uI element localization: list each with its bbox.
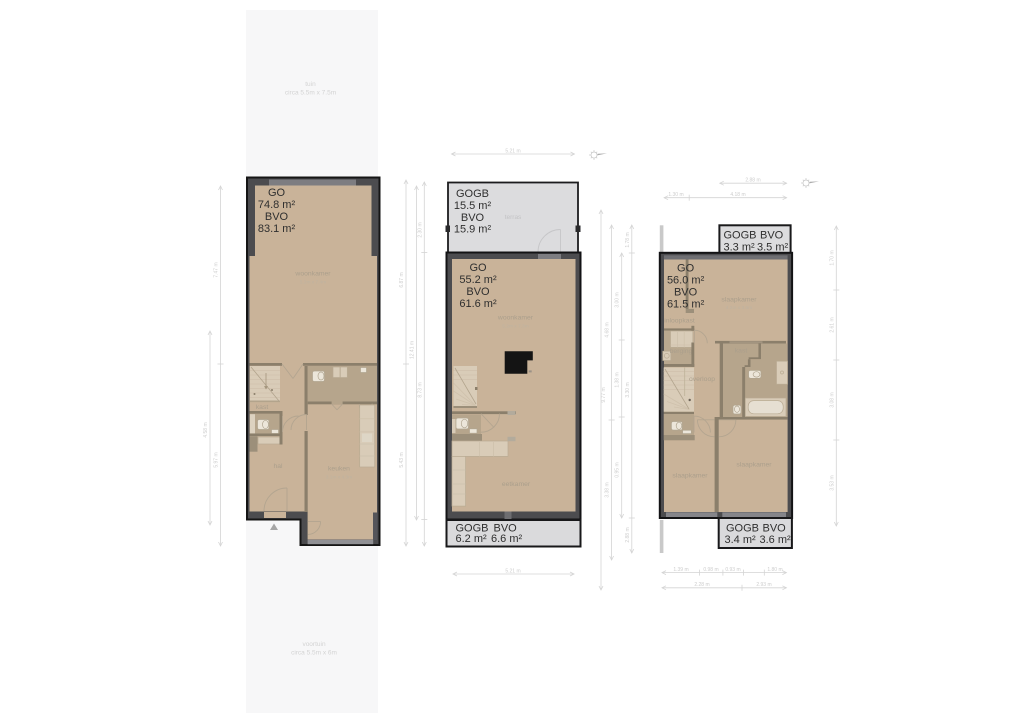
- svg-text:woonkamer: woonkamer: [294, 271, 331, 278]
- svg-text:5.21 m: 5.21 m: [505, 149, 520, 155]
- svg-text:inloopkast: inloopkast: [664, 317, 695, 324]
- svg-text:4.68 m: 4.68 m: [605, 322, 611, 337]
- svg-text:2.88 m: 2.88 m: [745, 178, 760, 184]
- svg-text:tuin: tuin: [305, 81, 316, 88]
- svg-text:0.93 m: 0.93 m: [725, 567, 740, 573]
- svg-text:61.5 m²: 61.5 m²: [667, 299, 705, 311]
- svg-text:3.6 m²: 3.6 m²: [760, 534, 792, 546]
- svg-text:kast: kast: [735, 348, 748, 355]
- svg-text:83.1 m²: 83.1 m²: [258, 223, 296, 235]
- svg-text:2.88 m: 2.88 m: [625, 527, 631, 542]
- svg-text:0.95 m: 0.95 m: [615, 462, 621, 477]
- svg-text:4.2m x 3.6m: 4.2m x 3.6m: [726, 305, 752, 311]
- svg-text:1.39 m: 1.39 m: [673, 567, 688, 573]
- svg-text:2.30 m: 2.30 m: [417, 222, 423, 237]
- svg-text:15.5 m²: 15.5 m²: [454, 200, 492, 212]
- svg-text:5.43 m: 5.43 m: [399, 452, 405, 467]
- svg-text:eetkamer: eetkamer: [502, 481, 531, 488]
- svg-text:3.1m x 4.3m: 3.1m x 4.3m: [326, 475, 352, 481]
- svg-text:GOGB: GOGB: [726, 522, 759, 534]
- svg-text:GOGB: GOGB: [456, 188, 489, 200]
- svg-text:3.5 m²: 3.5 m²: [757, 241, 789, 253]
- svg-text:9.77 m: 9.77 m: [601, 387, 607, 402]
- svg-text:3.53 m: 3.53 m: [829, 475, 835, 490]
- svg-text:3.30 m: 3.30 m: [625, 382, 631, 397]
- svg-text:1.38 m: 1.38 m: [615, 372, 621, 387]
- svg-text:slaapkamer: slaapkamer: [721, 297, 757, 304]
- svg-text:GO: GO: [677, 263, 695, 275]
- svg-text:berging: berging: [670, 348, 693, 355]
- svg-text:0.98 m: 0.98 m: [703, 567, 718, 573]
- svg-text:3.08 m: 3.08 m: [829, 392, 835, 407]
- svg-text:5.21 m: 5.21 m: [505, 569, 520, 575]
- svg-text:1.80 m: 1.80 m: [767, 567, 782, 573]
- svg-text:overloop: overloop: [689, 376, 715, 383]
- svg-text:GO: GO: [268, 187, 286, 199]
- svg-text:3.4 m²: 3.4 m²: [725, 534, 757, 546]
- svg-text:4.18 m: 4.18 m: [730, 192, 745, 198]
- svg-text:GO: GO: [469, 262, 487, 274]
- svg-text:1.30 m: 1.30 m: [668, 192, 683, 198]
- svg-text:6.2 m²: 6.2 m²: [456, 533, 488, 545]
- svg-text:12.41 m: 12.41 m: [410, 341, 416, 359]
- svg-text:74.8 m²: 74.8 m²: [258, 199, 296, 211]
- svg-text:woonkamer: woonkamer: [497, 315, 534, 322]
- svg-text:2.61 m: 2.61 m: [829, 317, 835, 332]
- svg-text:BVO: BVO: [760, 230, 784, 242]
- svg-text:7.47 m: 7.47 m: [214, 262, 220, 277]
- svg-text:56.0 m²: 56.0 m²: [667, 275, 705, 287]
- svg-text:3.38 m: 3.38 m: [605, 482, 611, 497]
- svg-text:61.6 m²: 61.6 m²: [459, 298, 497, 310]
- svg-text:BVO: BVO: [674, 287, 698, 299]
- svg-text:voortuin: voortuin: [302, 641, 326, 648]
- svg-text:5.2m x 7.4m: 5.2m x 7.4m: [300, 280, 326, 286]
- svg-text:circa 5.5m x 6m: circa 5.5m x 6m: [291, 650, 337, 657]
- svg-text:8.73 m: 8.73 m: [417, 382, 423, 397]
- svg-text:15.9 m²: 15.9 m²: [454, 224, 492, 236]
- svg-text:circa 5.5m x 7.5m: circa 5.5m x 7.5m: [285, 90, 336, 97]
- svg-text:3.00 m: 3.00 m: [615, 292, 621, 307]
- svg-text:BVO: BVO: [466, 286, 490, 298]
- svg-text:hal: hal: [273, 463, 283, 470]
- svg-text:keuken: keuken: [328, 466, 350, 473]
- svg-text:terras: terras: [505, 214, 522, 221]
- svg-text:1.78 m: 1.78 m: [625, 232, 631, 247]
- svg-text:BVO: BVO: [461, 212, 485, 224]
- svg-text:2.28 m: 2.28 m: [694, 582, 709, 588]
- svg-text:2.93 m: 2.93 m: [756, 582, 771, 588]
- svg-text:slaapkamer: slaapkamer: [736, 462, 772, 469]
- svg-text:slaapkamer: slaapkamer: [672, 473, 708, 480]
- svg-text:5.97 m: 5.97 m: [214, 452, 220, 467]
- svg-text:BVO: BVO: [763, 522, 787, 534]
- svg-text:6.6 m²: 6.6 m²: [491, 533, 523, 545]
- svg-text:BVO: BVO: [265, 211, 289, 223]
- svg-text:4.58 m: 4.58 m: [203, 422, 209, 437]
- svg-text:55.2 m²: 55.2 m²: [459, 274, 497, 286]
- svg-text:GOGB: GOGB: [724, 230, 757, 242]
- svg-text:kast: kast: [256, 404, 269, 411]
- svg-text:1.70 m: 1.70 m: [829, 250, 835, 265]
- svg-text:3.3 m²: 3.3 m²: [724, 241, 756, 253]
- svg-text:5.2m x 7.3m: 5.2m x 7.3m: [502, 324, 528, 330]
- svg-text:6.87 m: 6.87 m: [399, 272, 405, 287]
